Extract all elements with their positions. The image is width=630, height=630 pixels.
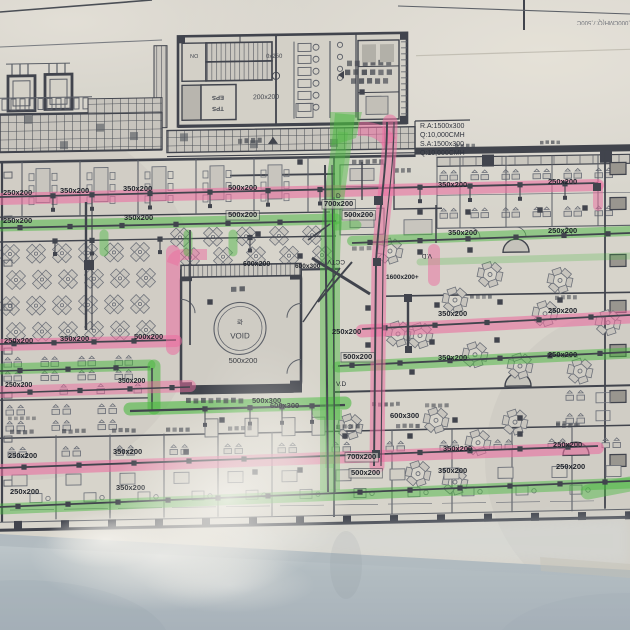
svg-text:,000CMH(Q:7,500C: ,000CMH(Q:7,500C — [576, 19, 630, 25]
